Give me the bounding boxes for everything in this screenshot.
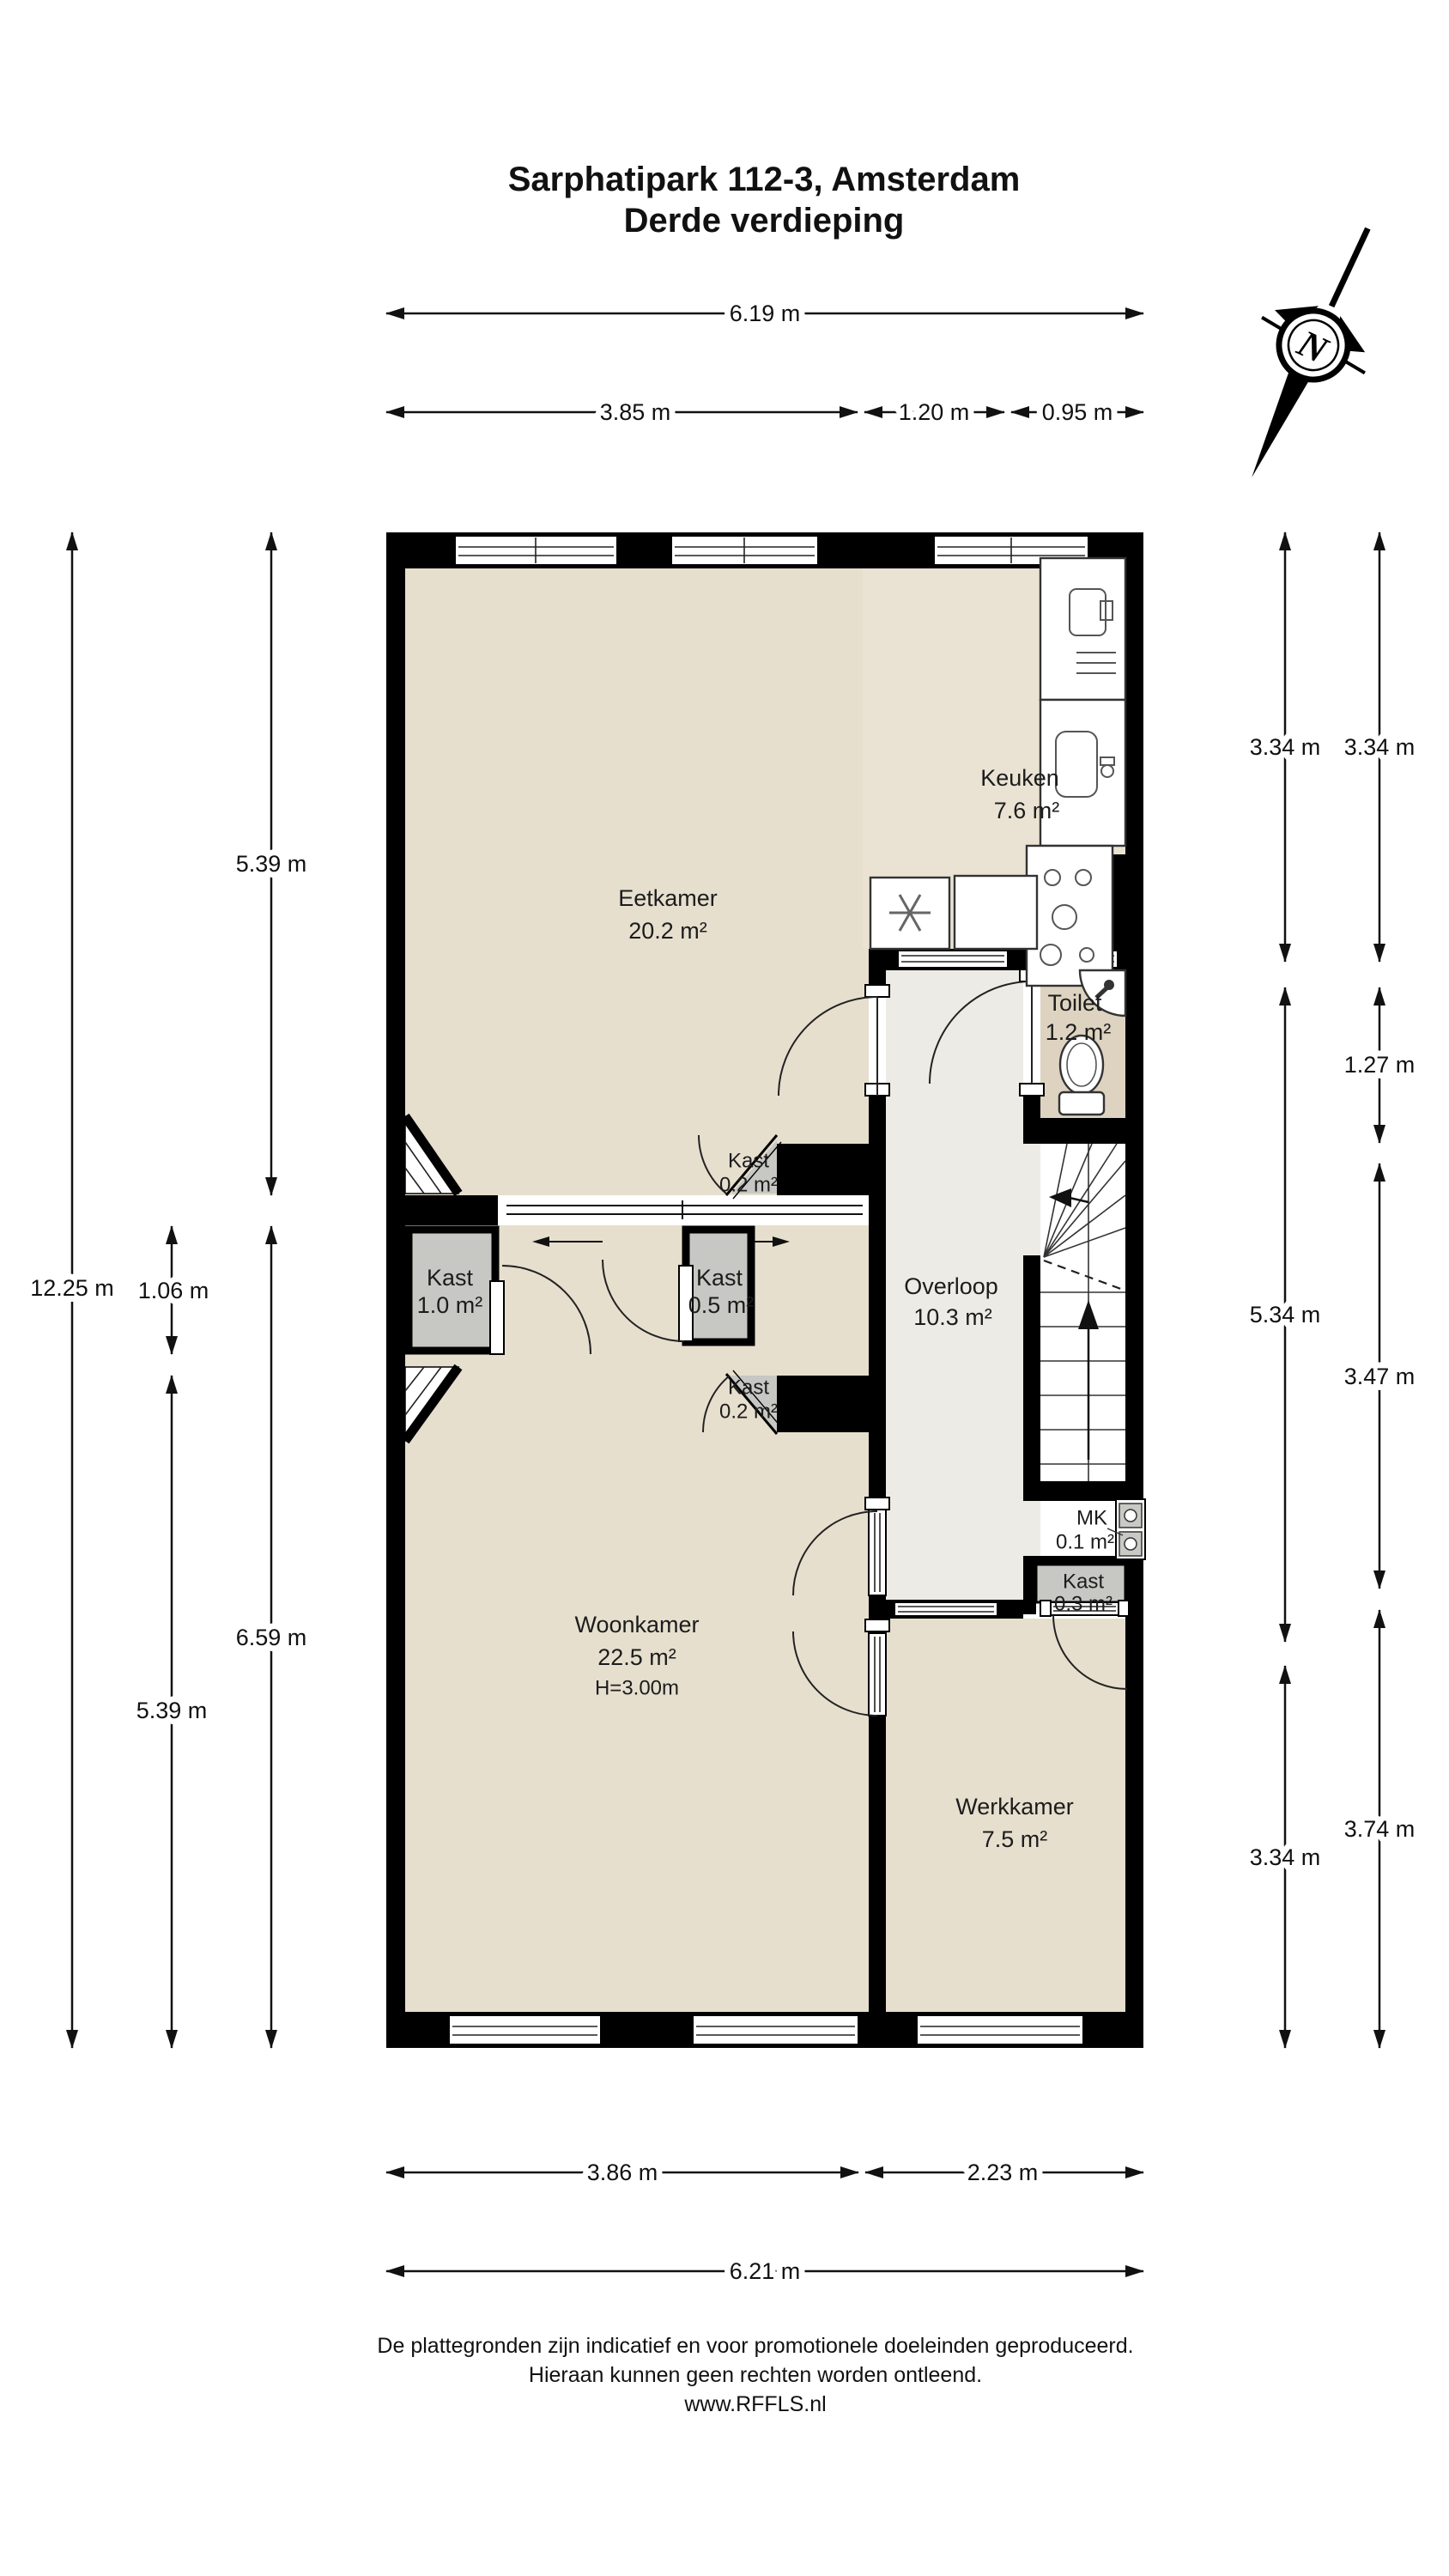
window-top-2 bbox=[671, 536, 818, 565]
dim-left-upper: 5.39 m bbox=[236, 851, 307, 877]
floor-eetkamer bbox=[405, 568, 869, 1195]
dim-left-lower: 5.39 m bbox=[136, 1698, 208, 1723]
stove-icon bbox=[1027, 846, 1113, 986]
wall-corridor-3 bbox=[869, 1195, 886, 1507]
floorplan-page: Sarphatipark 112-3, Amsterdam Derde verd… bbox=[0, 0, 1449, 2576]
label-kast-onder: Kast bbox=[728, 1376, 769, 1400]
wall-stair-left bbox=[1023, 1255, 1040, 1481]
footer-website: www.RFFLS.nl bbox=[683, 2392, 826, 2416]
page-title-address: Sarphatipark 112-3, Amsterdam bbox=[508, 161, 1021, 198]
compass-needle-line bbox=[1331, 228, 1367, 307]
transom-keuken-overloop bbox=[898, 951, 1008, 968]
washer-icon bbox=[870, 878, 949, 949]
wall-kast02-top-block bbox=[777, 1144, 869, 1195]
label-mk: MK bbox=[1076, 1507, 1107, 1530]
dim-left-total: 12.25 m bbox=[30, 1275, 114, 1301]
label-keuken-area: 7.6 m² bbox=[994, 798, 1060, 823]
dim-right-inner-top: 3.34 m bbox=[1250, 734, 1321, 760]
label-toilet-area: 1.2 m² bbox=[1046, 1019, 1112, 1045]
meterkast-icon bbox=[1116, 1499, 1145, 1559]
wall-corridor-4 bbox=[869, 1716, 886, 2012]
dim-bottom-right: 2.23 m bbox=[967, 2160, 1039, 2185]
label-mk-area: 0.1 m² bbox=[1056, 1531, 1114, 1554]
label-kast-onder-area: 0.2 m² bbox=[719, 1400, 778, 1424]
window-top-1 bbox=[455, 536, 617, 565]
toilet-icon bbox=[1059, 1036, 1104, 1115]
floorplan-svg: Sarphatipark 112-3, Amsterdam Derde verd… bbox=[0, 0, 1449, 2576]
dim-right-outer-bottom: 3.74 m bbox=[1344, 1816, 1416, 1842]
appliance-box bbox=[955, 876, 1037, 949]
label-overloop: Overloop bbox=[904, 1273, 998, 1299]
dim-right-inner-mid: 5.34 m bbox=[1250, 1302, 1321, 1327]
label-kast-boven: Kast bbox=[728, 1150, 769, 1173]
label-kast-werk: Kast bbox=[1063, 1571, 1104, 1594]
label-woonkamer-area: 22.5 m² bbox=[597, 1644, 676, 1670]
dim-right-inner-bottom: 3.34 m bbox=[1250, 1844, 1321, 1870]
window-bottom-1 bbox=[449, 2015, 601, 2044]
floor-stairwell bbox=[1040, 1144, 1125, 1481]
label-eetkamer-area: 20.2 m² bbox=[628, 918, 707, 944]
dim-bottom-left: 3.86 m bbox=[587, 2160, 658, 2185]
footer-disclaimer-2: Hieraan kunnen geen rechten worden ontle… bbox=[529, 2363, 982, 2387]
label-keuken: Keuken bbox=[980, 765, 1059, 791]
label-kast-midden-area: 0.5 m² bbox=[688, 1292, 755, 1318]
label-kast-werk-area: 0.3 m² bbox=[1054, 1593, 1113, 1616]
wall-kast02-bottom-block bbox=[777, 1376, 869, 1432]
floor-overloop-mk bbox=[1023, 1501, 1040, 1556]
label-werkkamer: Werkkamer bbox=[955, 1794, 1074, 1820]
compass-south-tail bbox=[1241, 370, 1309, 483]
wall-right bbox=[1125, 532, 1143, 2048]
label-overloop-area: 10.3 m² bbox=[913, 1304, 992, 1330]
label-kast-links-area: 1.0 m² bbox=[417, 1292, 483, 1318]
label-toilet: Toilet bbox=[1047, 990, 1102, 1016]
label-woonkamer: Woonkamer bbox=[574, 1612, 699, 1637]
window-bottom-3 bbox=[917, 2015, 1083, 2044]
wall-corridor-1 bbox=[869, 949, 886, 985]
transom-werkkamer-top bbox=[894, 1602, 997, 1616]
dim-left-kast: 1.06 m bbox=[138, 1278, 209, 1303]
dim-top-total: 6.19 m bbox=[730, 301, 801, 326]
wall-kast03-left bbox=[1023, 1556, 1036, 1614]
wall-band-left-jamb bbox=[405, 1195, 498, 1225]
dim-bottom-total: 6.21 m bbox=[730, 2258, 801, 2284]
window-bottom-2 bbox=[693, 2015, 858, 2044]
wall-left bbox=[386, 532, 405, 2048]
wall-stair-bottom bbox=[1023, 1481, 1125, 1501]
dim-right-outer-top: 3.34 m bbox=[1344, 734, 1416, 760]
dim-top-right: 0.95 m bbox=[1042, 399, 1113, 425]
page-title-floor: Derde verdieping bbox=[624, 202, 905, 240]
wall-corridor-2 bbox=[869, 1096, 886, 1195]
dim-right-outer-trap: 3.47 m bbox=[1344, 1364, 1416, 1389]
label-kast-links: Kast bbox=[427, 1265, 474, 1291]
label-woonkamer-height: H=3.00m bbox=[595, 1677, 679, 1700]
dim-top-mid: 1.20 m bbox=[899, 399, 970, 425]
wall-toilet-bottom bbox=[1023, 1118, 1143, 1144]
label-kast-midden: Kast bbox=[696, 1265, 743, 1291]
compass-rose: N bbox=[1199, 204, 1421, 501]
dim-left-woonkamer: 6.59 m bbox=[236, 1625, 307, 1650]
dim-top-left: 3.85 m bbox=[600, 399, 671, 425]
label-kast-boven-area: 0.2 m² bbox=[719, 1174, 778, 1197]
label-werkkamer-area: 7.5 m² bbox=[982, 1826, 1048, 1852]
kitchen-unit-icon bbox=[1040, 558, 1125, 700]
dim-right-outer-toilet: 1.27 m bbox=[1344, 1052, 1416, 1078]
footer-disclaimer-1: De plattegronden zijn indicatief en voor… bbox=[377, 2334, 1133, 2358]
label-eetkamer: Eetkamer bbox=[618, 885, 718, 911]
floor-overloop-stair-entry bbox=[1023, 1144, 1040, 1255]
